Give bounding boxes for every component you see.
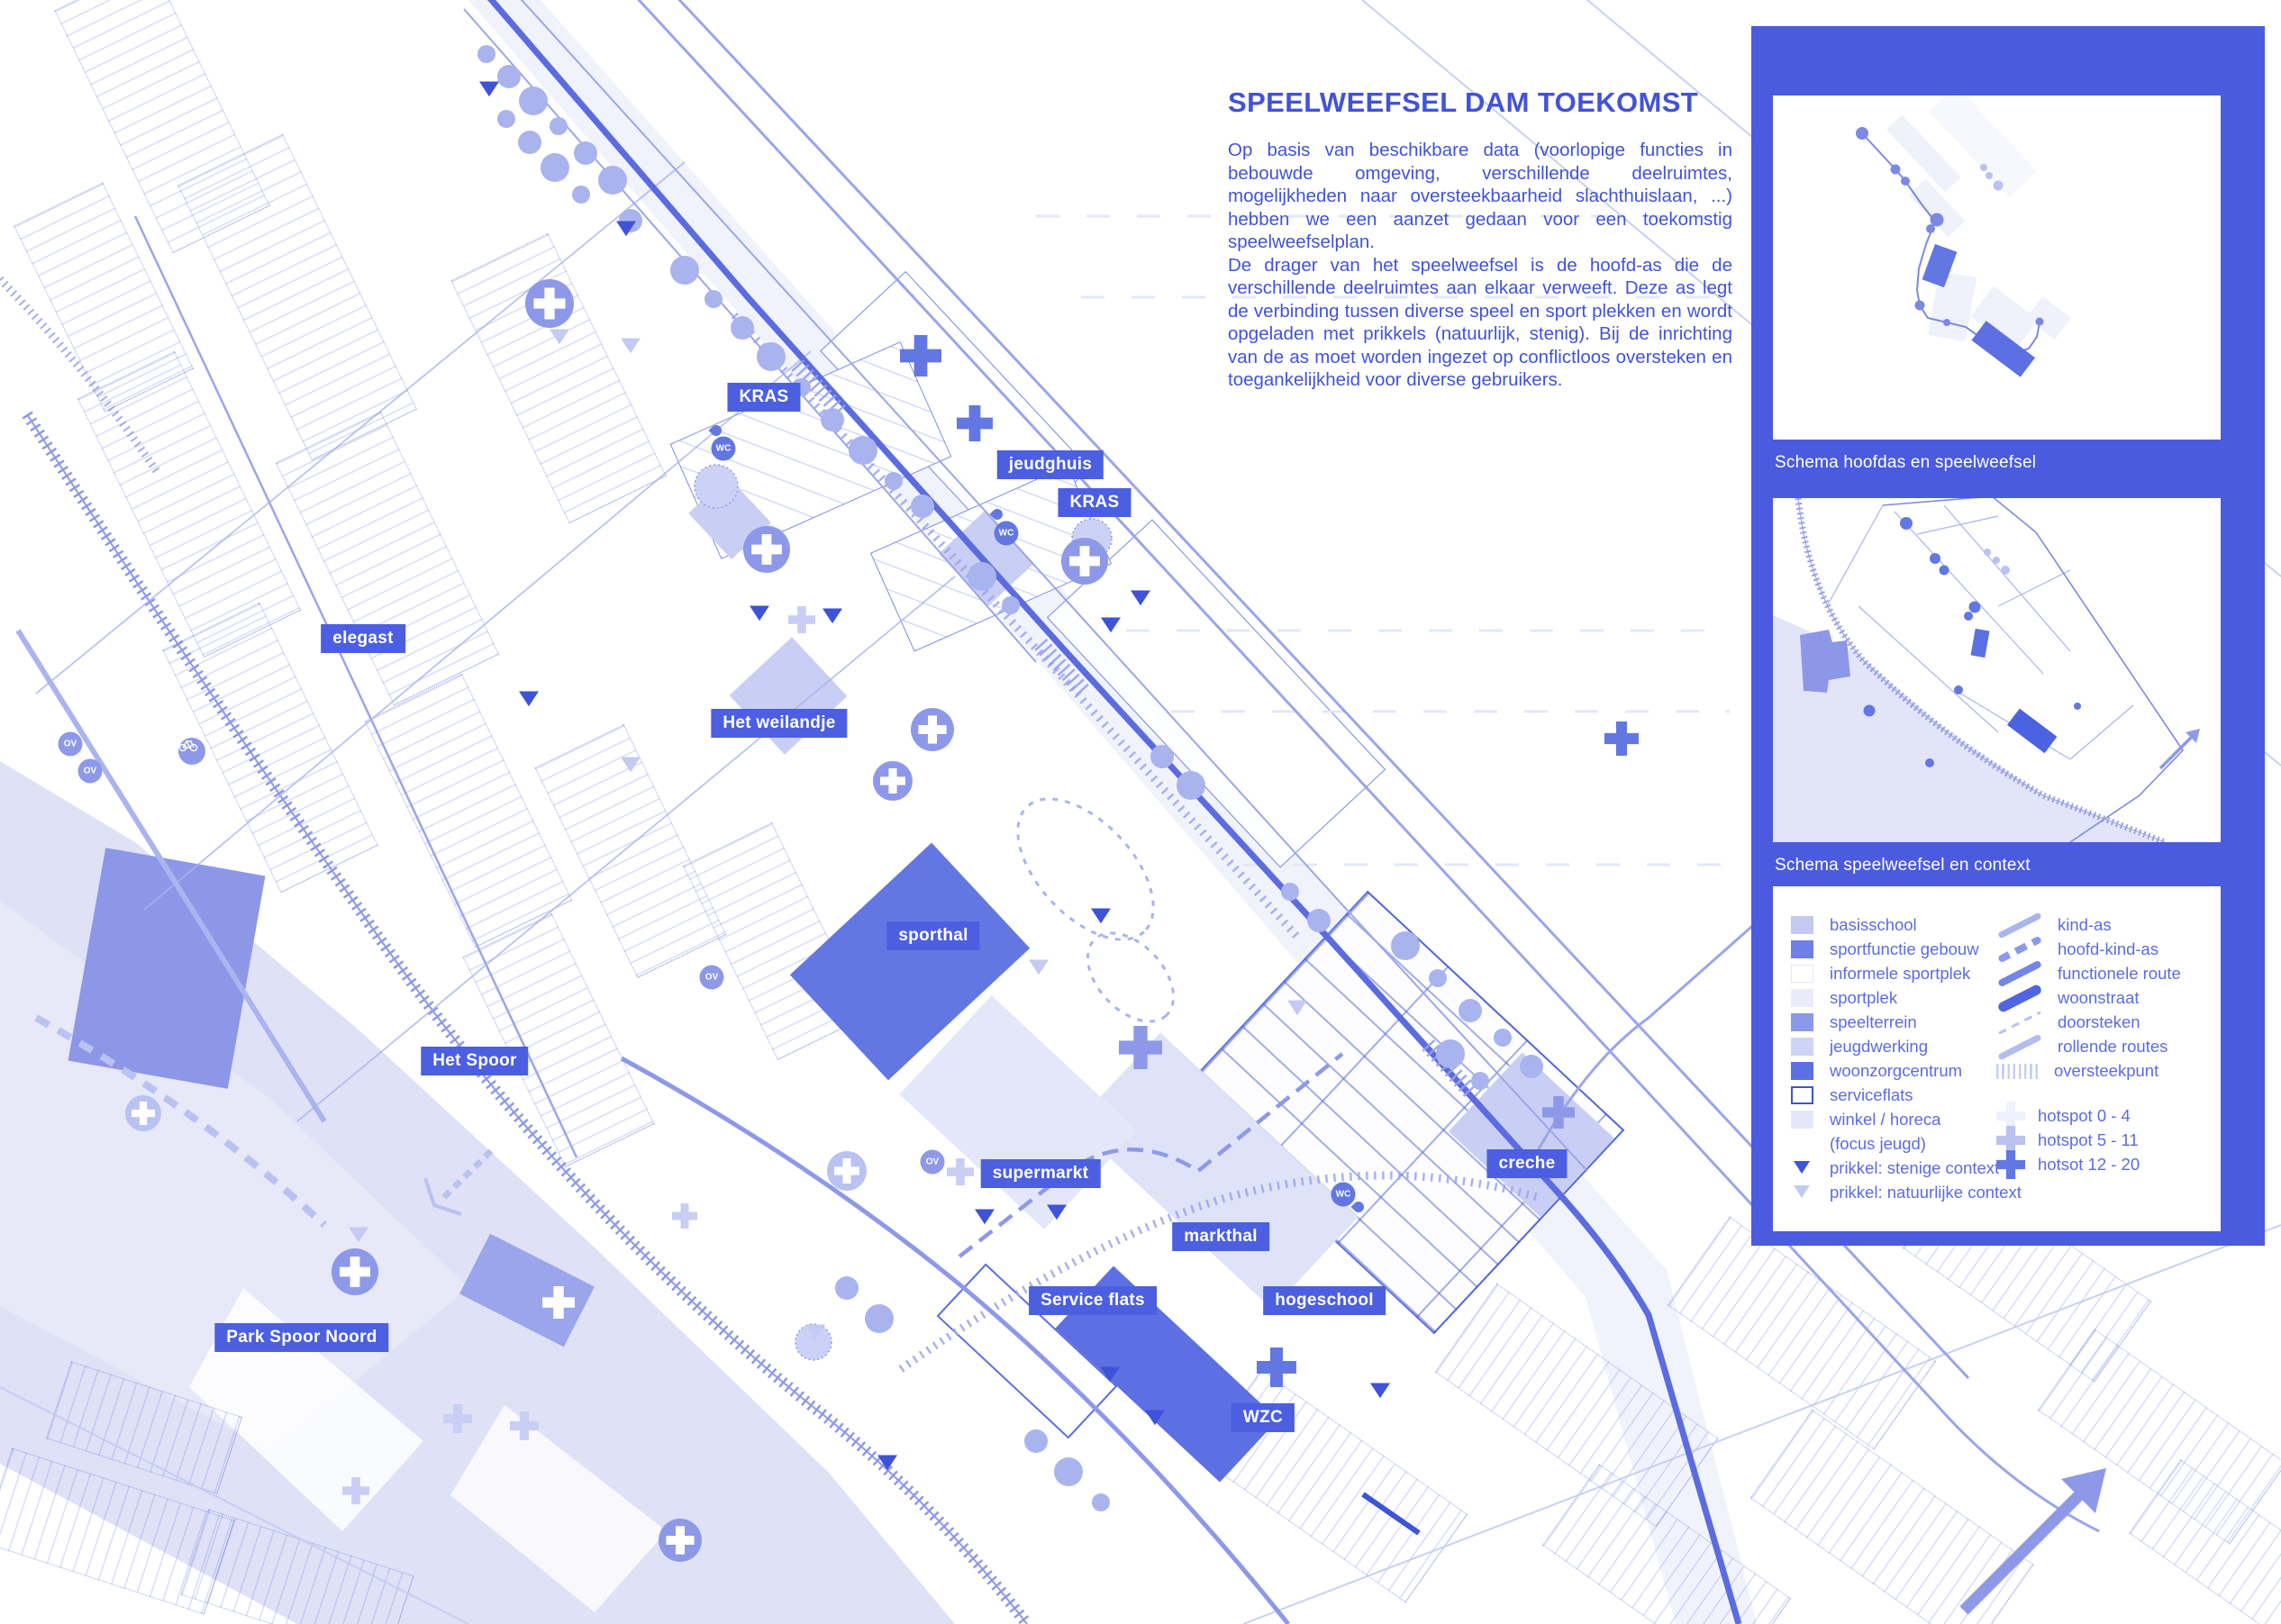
legend: basisschool sportfunctie gebouw informel…: [1773, 886, 2221, 1231]
kind-as-line-icon: [1997, 912, 2042, 939]
schema-context-drawing: [1773, 498, 2221, 842]
functionele-route-line-icon: [1997, 960, 2042, 988]
side-panel: Schema hoofdas en speelweefsel: [1751, 26, 2265, 1246]
legend-item-hoofd-kind-as: hoofd-kind-as: [1996, 939, 2158, 960]
legend-item-woonstraat: woonstraat: [1996, 987, 2140, 1009]
legend-label: woonstraat: [2058, 988, 2140, 1008]
poster-stage: OVOVOVOVWCWCWC KRAS jeudghuis KRAS elega…: [0, 0, 2281, 1624]
map-label-wzc: WZC: [1231, 1403, 1295, 1432]
legend-label: sportfunctie gebouw: [1830, 939, 1979, 959]
hoofd-kind-as-line-icon: [1997, 936, 2042, 964]
page-title: SPEELWEEFSEL DAM TOEKOMST: [1228, 86, 1732, 119]
legend-item-jeugdwerking: jeugdwerking: [1791, 1036, 1928, 1057]
legend-item-speelterrein: speelterrein: [1791, 1012, 1917, 1033]
basisschool-swatch: [1791, 916, 1813, 934]
legend-label: woonzorgcentrum: [1830, 1061, 1962, 1081]
legend-item-basisschool: basisschool: [1791, 914, 1917, 936]
legend-label: serviceflats: [1830, 1085, 1913, 1105]
context-arrow: [2160, 729, 2200, 768]
legend-label: kind-as: [2058, 915, 2112, 935]
legend-item-focus-jeugd: (focus jeugd): [1791, 1133, 1926, 1155]
serviceflats-swatch: [1791, 1086, 1813, 1104]
speelterrein-swatch: [1791, 1013, 1813, 1031]
schema-hoofdas-caption: Schema hoofdas en speelweefsel: [1775, 453, 2036, 473]
schema-hoofdas-drawing: [1773, 95, 2221, 440]
legend-label: basisschool: [1830, 915, 1917, 935]
legend-item-prikkel-natuurlijk: prikkel: natuurlijke context: [1791, 1182, 2022, 1203]
legend-label: (focus jeugd): [1830, 1134, 1926, 1154]
map-label-park-spoor-noord: Park Spoor Noord: [214, 1323, 388, 1352]
jeugdwerking-swatch: [1791, 1038, 1813, 1056]
map-label-service-flats: Service flats: [1029, 1286, 1157, 1315]
legend-item-hotspot-0-4: hotspot 0 - 4: [1996, 1105, 2131, 1127]
legend-item-serviceflats: serviceflats: [1791, 1084, 1913, 1106]
prikkel-natuurlijk-triangle-icon: [1794, 1185, 1810, 1200]
map-label-sporthal: sporthal: [886, 921, 979, 950]
doorsteken-line-icon: [1998, 1011, 2041, 1034]
legend-label: prikkel: natuurlijke context: [1830, 1183, 2022, 1202]
legend-label: hotsot 12 - 20: [2038, 1155, 2140, 1175]
map-label-jeudghuis: jeudghuis: [997, 450, 1104, 479]
map-label-hogeschool: hogeschool: [1263, 1286, 1386, 1315]
legend-item-functionele-route: functionele route: [1996, 963, 2181, 984]
woonzorgcentrum-swatch: [1791, 1062, 1813, 1080]
legend-label: rollende routes: [2058, 1037, 2167, 1057]
article-block: SPEELWEEFSEL DAM TOEKOMST Op basis van b…: [1228, 86, 1732, 392]
legend-item-sportplek: sportplek: [1791, 987, 1897, 1009]
legend-label: oversteekpunt: [2054, 1061, 2158, 1081]
legend-label: functionele route: [2058, 964, 2181, 984]
map-label-het-weilandje: Het weilandje: [711, 709, 847, 738]
legend-item-winkel-horeca: winkel / horeca: [1791, 1109, 1940, 1130]
woonstraat-line-icon: [1996, 983, 2042, 1012]
map-label-het-spoor: Het Spoor: [421, 1047, 528, 1075]
rollende-routes-line-icon: [1997, 1033, 2042, 1060]
hotspot-large-plus-icon: [1996, 1150, 2025, 1179]
prikkel-stenig-triangle-icon: [1794, 1161, 1810, 1175]
legend-item-kind-as: kind-as: [1996, 914, 2112, 936]
legend-item-woonzorgcentrum: woonzorgcentrum: [1791, 1060, 1962, 1082]
legend-item-sportfunctie: sportfunctie gebouw: [1791, 939, 1979, 960]
legend-label: speelterrein: [1830, 1012, 1917, 1032]
legend-item-doorsteken: doorsteken: [1996, 1012, 2140, 1033]
legend-label: sportplek: [1830, 988, 1897, 1008]
empty-swatch: [1791, 1135, 1813, 1153]
legend-label: hotspot 5 - 11: [2038, 1130, 2139, 1150]
sportplek-swatch: [1791, 989, 1813, 1007]
map-label-supermarkt: supermarkt: [981, 1159, 1101, 1188]
legend-item-informele-sportplek: informele sportplek: [1791, 963, 1970, 984]
schema-hoofdas-inset: [1773, 95, 2221, 440]
legend-item-oversteekpunt: oversteekpunt: [1996, 1060, 2158, 1082]
schema-context-caption: Schema speelweefsel en context: [1775, 856, 2031, 876]
legend-label: winkel / horeca: [1830, 1110, 1940, 1130]
schema-context-inset: [1773, 498, 2221, 842]
sportfunctie-swatch: [1791, 940, 1813, 958]
map-label-kras-1: KRAS: [727, 383, 800, 412]
map-label-elegast: elegast: [321, 624, 405, 653]
map-label-creche: creche: [1486, 1149, 1567, 1178]
map-label-kras-2: KRAS: [1058, 488, 1131, 517]
article-paragraph-2: De drager van het speelweefsel is de hoo…: [1228, 254, 1732, 392]
legend-label: hotspot 0 - 4: [2038, 1106, 2131, 1126]
map-label-markthal: markthal: [1172, 1222, 1269, 1251]
article-paragraph-1: Op basis van beschikbare data (voorlopig…: [1228, 139, 1732, 254]
legend-label: doorsteken: [2058, 1012, 2140, 1032]
legend-label: prikkel: stenige context: [1830, 1158, 1999, 1178]
legend-item-hotspot-12-20: hotsot 12 - 20: [1996, 1154, 2140, 1175]
legend-item-hotspot-5-11: hotspot 5 - 11: [1996, 1130, 2139, 1151]
informele-sportplek-swatch: [1791, 965, 1813, 983]
legend-label: hoofd-kind-as: [2058, 939, 2158, 959]
legend-item-rollende-routes: rollende routes: [1996, 1036, 2167, 1057]
legend-label: informele sportplek: [1830, 964, 1970, 984]
oversteekpunt-hatch-icon: [1996, 1064, 2040, 1079]
legend-item-prikkel-stenig: prikkel: stenige context: [1791, 1157, 1999, 1179]
legend-label: jeugdwerking: [1830, 1037, 1928, 1057]
winkel-horeca-swatch: [1791, 1111, 1813, 1129]
